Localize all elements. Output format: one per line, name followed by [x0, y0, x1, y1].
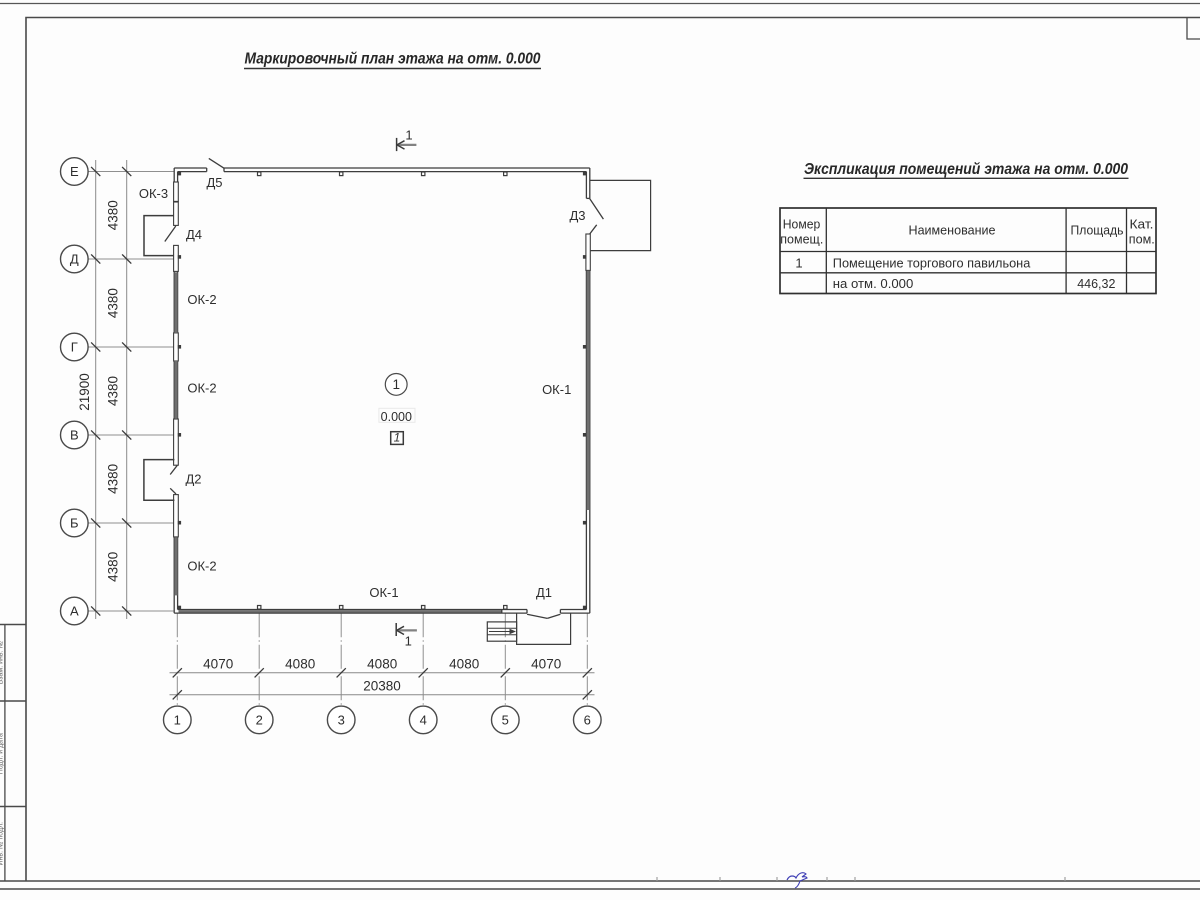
svg-text:ОК-3: ОК-3 — [139, 186, 168, 201]
svg-text:Д4: Д4 — [186, 227, 202, 242]
svg-text:1: 1 — [795, 256, 802, 271]
svg-text:0.000: 0.000 — [381, 410, 412, 424]
svg-text:Номер: Номер — [783, 217, 821, 232]
svg-text:3: 3 — [338, 713, 345, 728]
svg-text:1: 1 — [174, 713, 181, 728]
svg-text:1: 1 — [392, 377, 400, 392]
svg-text:ОК-2: ОК-2 — [187, 292, 216, 307]
svg-text:1: 1 — [405, 634, 412, 649]
svg-text:2: 2 — [256, 713, 263, 728]
svg-text:Д: Д — [70, 252, 79, 267]
svg-text:А: А — [70, 604, 79, 619]
svg-text:Маркировочный план этажа на от: Маркировочный план этажа на отм. 0.000 — [245, 51, 541, 68]
svg-text:4080: 4080 — [449, 657, 479, 672]
svg-text:4080: 4080 — [367, 657, 397, 672]
svg-text:20380: 20380 — [363, 679, 401, 694]
svg-text:4380: 4380 — [106, 288, 121, 318]
svg-text:4380: 4380 — [106, 200, 121, 230]
svg-text:ОК-1: ОК-1 — [369, 585, 398, 600]
svg-text:21900: 21900 — [77, 373, 92, 411]
svg-text:ОК-1: ОК-1 — [542, 382, 571, 397]
svg-text:ОК-2: ОК-2 — [187, 558, 216, 573]
svg-text:Взам. инв. №: Взам. инв. № — [0, 641, 5, 684]
svg-text:4: 4 — [420, 713, 427, 728]
svg-text:помещ.: помещ. — [780, 232, 823, 247]
svg-text:1: 1 — [394, 431, 401, 445]
svg-text:4070: 4070 — [531, 657, 561, 672]
svg-text:6: 6 — [584, 713, 591, 728]
svg-text:Экспликация помещений этажа на: Экспликация помещений этажа на отм. 0.00… — [804, 161, 1128, 178]
svg-text:Площадь: Площадь — [1071, 222, 1124, 237]
svg-text:В: В — [70, 428, 79, 443]
svg-text:Д5: Д5 — [206, 175, 222, 190]
svg-text:Кат.: Кат. — [1130, 217, 1154, 232]
svg-text:Наименование: Наименование — [909, 222, 996, 237]
svg-text:4380: 4380 — [106, 552, 121, 582]
svg-text:Г: Г — [71, 340, 78, 355]
svg-text:Инв. № подл.: Инв. № подл. — [0, 822, 5, 866]
svg-text:Д1: Д1 — [536, 585, 552, 600]
svg-text:1: 1 — [405, 127, 412, 142]
svg-text:Помещение торгового павильона: Помещение торгового павильона — [833, 256, 1031, 271]
svg-text:4380: 4380 — [106, 376, 121, 406]
svg-text:Подп. и дата: Подп. и дата — [0, 733, 5, 774]
svg-text:4070: 4070 — [203, 657, 233, 672]
svg-text:446,32: 446,32 — [1077, 276, 1115, 291]
svg-text:пом.: пом. — [1129, 232, 1155, 247]
svg-text:Д2: Д2 — [185, 471, 201, 486]
svg-text:Е: Е — [70, 164, 79, 179]
svg-text:ОК-2: ОК-2 — [187, 381, 216, 396]
svg-text:на отм. 0.000: на отм. 0.000 — [833, 276, 914, 291]
svg-text:Б: Б — [70, 516, 79, 531]
svg-text:Д3: Д3 — [569, 208, 585, 223]
svg-text:4380: 4380 — [106, 464, 121, 494]
svg-text:4080: 4080 — [285, 657, 315, 672]
svg-text:5: 5 — [502, 713, 509, 728]
